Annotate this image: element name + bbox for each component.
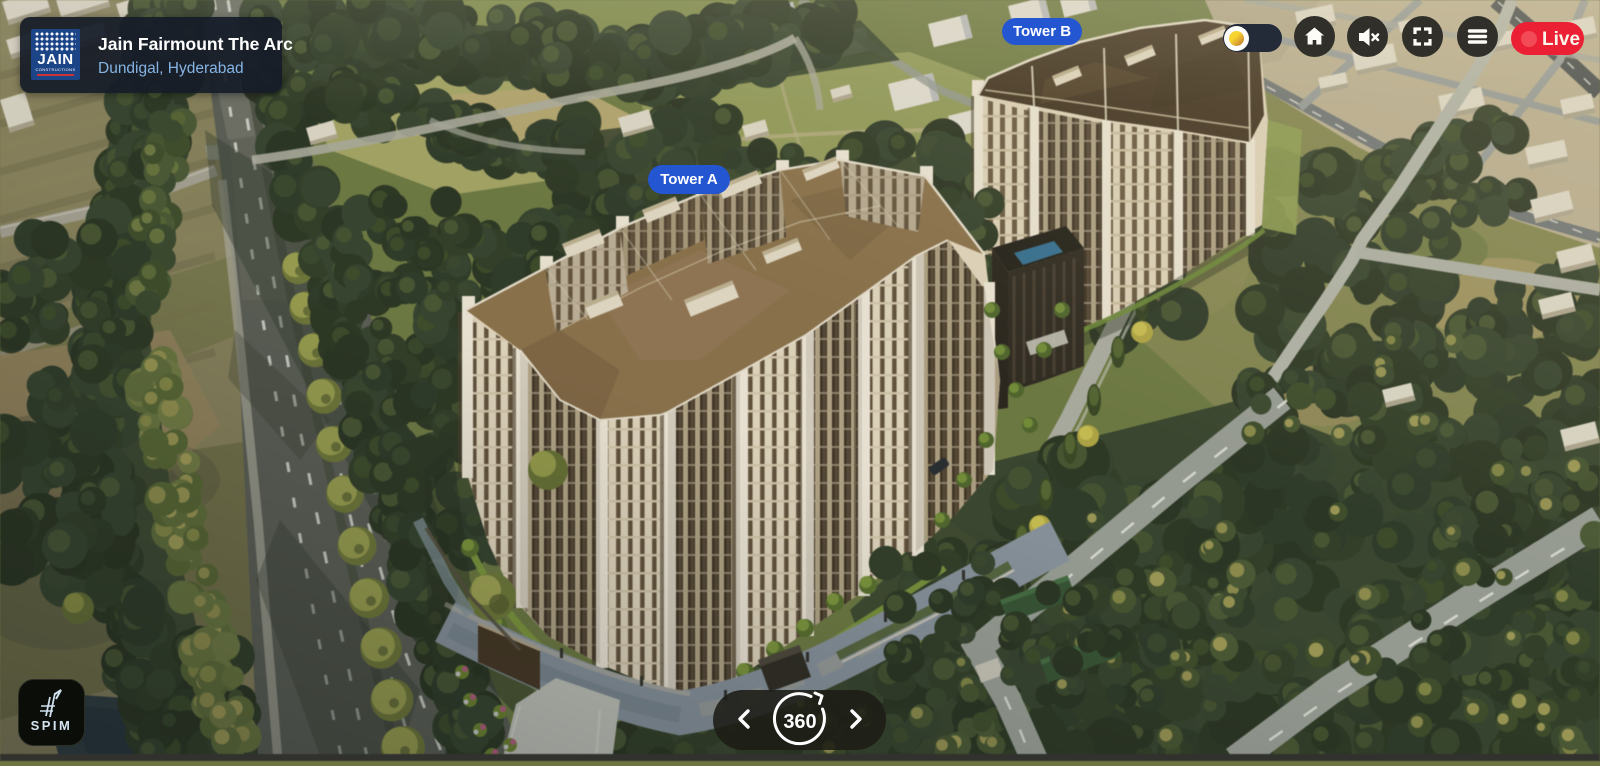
svg-text:360: 360: [783, 711, 816, 733]
svg-text:SPIM: SPIM: [31, 718, 73, 733]
